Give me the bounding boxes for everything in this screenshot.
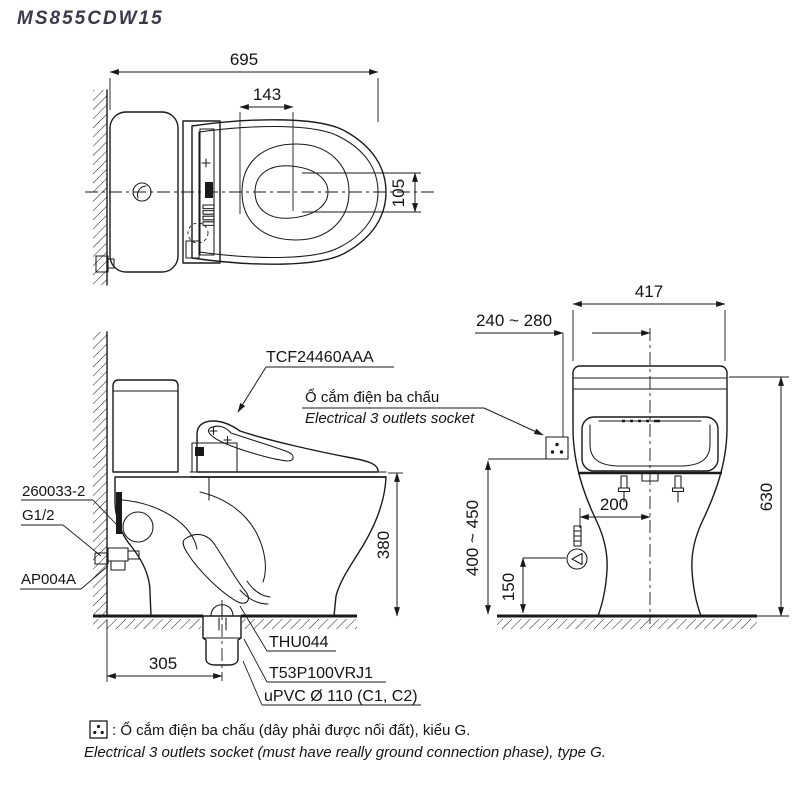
label-socket-vi: Ổ cắm điện ba chấu <box>305 388 439 406</box>
dashed-circle <box>188 223 208 243</box>
dim-105: 105 <box>389 179 408 207</box>
dim-417: 417 <box>635 282 663 301</box>
bidet-lid-profile <box>197 421 378 472</box>
supply-riser <box>116 492 122 534</box>
floor-hatch <box>93 619 201 629</box>
trap-arcs <box>240 581 270 604</box>
socket-pin <box>560 450 563 453</box>
dim-630: 630 <box>757 483 776 511</box>
dim-380: 380 <box>374 531 393 559</box>
plus-mark <box>202 159 210 167</box>
pipe-ribs <box>574 531 581 541</box>
footer-note-vi: : Ổ cắm điện ba chấu (dây phải được nối … <box>112 721 470 739</box>
dim-200: 200 <box>600 495 628 514</box>
socket-icon <box>90 721 107 738</box>
hose-loop <box>123 512 153 542</box>
dim-143: 143 <box>253 85 281 104</box>
footer-note-en: Electrical 3 outlets socket (must have r… <box>84 744 606 761</box>
dim-695: 695 <box>230 50 258 69</box>
label-drain-pipe: uPVC Ø 110 (C1, C2) <box>264 688 418 705</box>
dim-305: 305 <box>149 654 177 673</box>
label-socket-en: Electrical 3 outlets socket <box>305 410 475 427</box>
vent-bar <box>203 216 214 220</box>
valve-glyph <box>572 554 582 565</box>
dim-400-450: 400 ~ 450 <box>463 500 482 576</box>
leader-line <box>484 408 543 435</box>
bowl-profile <box>115 477 386 616</box>
socket-pin <box>97 725 100 728</box>
drawing-title: MS855CDW15 <box>17 8 164 29</box>
socket-pin <box>551 450 554 453</box>
socket-pin <box>93 731 96 734</box>
supply-valve-rear <box>567 549 587 569</box>
lid-arm <box>208 426 293 461</box>
wall-hatch <box>93 332 107 618</box>
control-slot <box>205 182 213 198</box>
technical-drawing-canvas: MS855CDW15 695 <box>0 0 800 800</box>
technical-drawing-page: MS855CDW15 695 <box>0 0 800 800</box>
dim-240-280: 240 ~ 280 <box>476 311 552 330</box>
mount-bolt <box>673 476 684 502</box>
floor-hatch <box>242 619 357 629</box>
vent-bar <box>203 205 214 209</box>
vent-bar <box>203 222 214 226</box>
label-supply-hose: 260033-2 <box>22 483 85 500</box>
inner-bowl-wall <box>200 492 265 582</box>
dim-150: 150 <box>499 573 518 601</box>
label-thread: G1/2 <box>22 507 55 524</box>
socket-pin <box>555 443 558 446</box>
label-seal: THU044 <box>269 634 329 651</box>
label-bidet-seat: TCF24460AAA <box>266 349 374 366</box>
label-flange: T53P100VRJ1 <box>269 665 373 682</box>
trapway-curve <box>183 534 248 603</box>
vent-bar <box>203 211 214 215</box>
label-stop-valve: AP004A <box>21 571 76 588</box>
plan-view: 695 143 105 <box>85 50 436 285</box>
rear-view: 417 240 ~ 280 400 ~ 450 630 200 150 <box>463 282 789 629</box>
socket-pin <box>101 731 104 734</box>
socket-icon <box>546 437 568 459</box>
tank-side <box>113 380 178 472</box>
footer-note: : Ổ cắm điện ba chấu (dây phải được nối … <box>84 721 606 761</box>
stop-valve-body <box>108 548 128 561</box>
floor-hatch <box>497 619 757 629</box>
leader-line <box>238 367 266 412</box>
hinge-detail <box>195 447 204 456</box>
valve-nut <box>111 561 125 570</box>
